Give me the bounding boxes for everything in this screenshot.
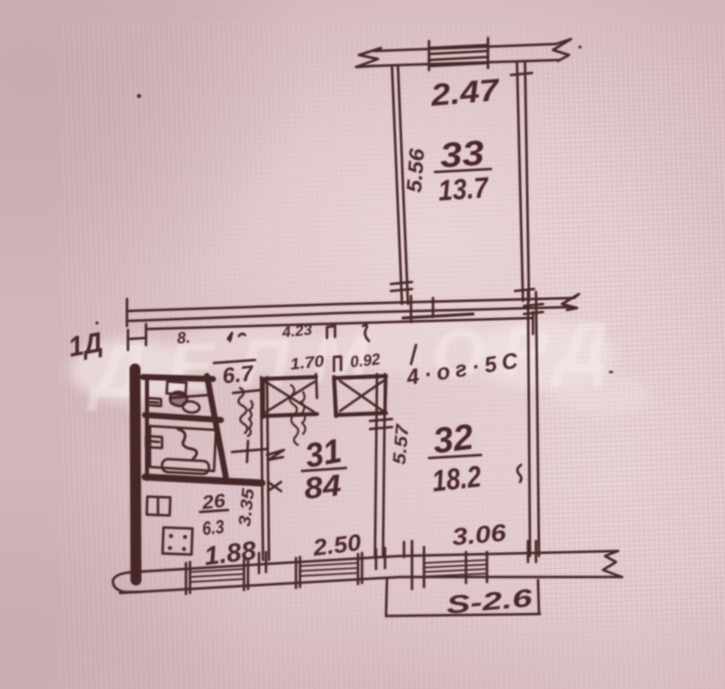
svg-text:3.35: 3.35 [235,487,258,527]
svg-text:Д: Д [550,308,608,388]
svg-text:1.70: 1.70 [289,353,325,373]
svg-text:3.06: 3.06 [451,520,508,552]
svg-text:5.57: 5.57 [389,423,413,466]
svg-text:4.23: 4.23 [280,321,313,341]
svg-text:1Д: 1Д [66,326,105,362]
svg-text:2.47: 2.47 [428,72,502,113]
svg-text:1.88: 1.88 [202,535,258,571]
svg-text:13.7: 13.7 [437,172,491,208]
svg-text:32: 32 [431,416,476,462]
svg-text:6.3: 6.3 [201,517,225,540]
svg-text:0.92: 0.92 [349,351,381,371]
svg-text:6.7: 6.7 [221,360,256,388]
svg-text:5.56: 5.56 [403,148,429,194]
svg-text:18.2: 18.2 [431,460,483,498]
svg-text:84: 84 [303,469,344,506]
svg-text:8.: 8. [177,330,191,348]
